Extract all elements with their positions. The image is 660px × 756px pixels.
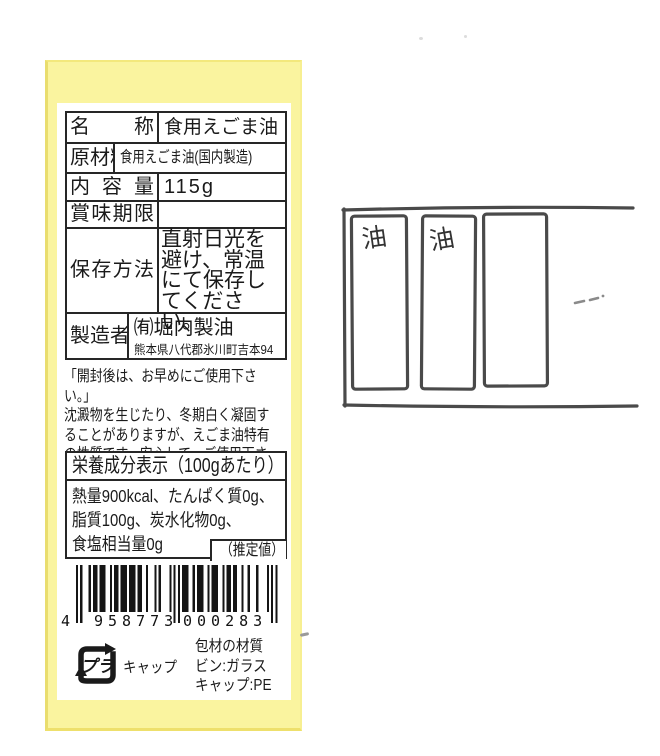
barcode-right-digits: 000283: [183, 612, 271, 630]
product-label-yellow-background: 名称 食用えごま油 原材料名 食用えごま油(国内製造) 内容量 115g 賞味期…: [45, 60, 302, 731]
table-row-storage: 保存方法 直射日光を避け、常温にて保存してください。: [67, 229, 285, 314]
table-row-name: 名称 食用えごま油: [67, 113, 285, 144]
row-label-manufacturer: 製造者: [67, 314, 129, 358]
table-row-manufacturer: 製造者 ㈲堀内製油 熊本県八代郡氷川町吉本94: [67, 314, 285, 358]
product-label-white-panel: 名称 食用えごま油 原材料名 食用えごま油(国内製造) 内容量 115g 賞味期…: [57, 103, 291, 700]
row-label-ingredients: 原材料名: [67, 144, 115, 172]
barcode-left-digits: 958773: [94, 612, 182, 630]
packaging-material-info: 包材の材質 ビン:ガラス キャップ:PE: [195, 637, 295, 696]
row-label-storage: 保存方法: [67, 229, 159, 312]
table-row-best-before: 賞味期限: [67, 202, 285, 229]
row-value-storage: 直射日光を避け、常温にて保存してください。: [159, 229, 285, 312]
sketch-slot-3: [484, 214, 548, 386]
sketch-outer-bottom-line: [344, 405, 637, 407]
table-row-net-content: 内容量 115g: [67, 174, 285, 202]
nutrition-title: 栄養成分表示（100gあたり）: [67, 453, 285, 481]
stray-dash: [590, 298, 598, 300]
row-label-name: 名称: [67, 113, 159, 142]
recycle-cap-label-text: キャップ: [123, 656, 177, 677]
stray-dot: [602, 295, 605, 298]
sketch-oil-character-1: 油: [360, 223, 389, 254]
nutrition-estimate-box: （推定値）: [210, 539, 286, 561]
sketch-outer-top-line: [343, 207, 633, 210]
nutrition-estimate-text: （推定値）: [220, 541, 284, 561]
row-label-best-before: 賞味期限: [67, 202, 159, 227]
stray-dash: [575, 301, 584, 303]
recycle-mark-text: プラ: [80, 657, 115, 676]
plastic-recycle-icon: プラ: [72, 641, 122, 691]
row-value-name: 食用えごま油: [159, 113, 285, 142]
barcode-first-digit: 4: [61, 612, 70, 630]
nutrition-title-text: 栄養成分表示（100gあたり）: [72, 453, 284, 479]
packaging-material-text: 包材の材質 ビン:ガラス キャップ:PE: [195, 637, 283, 696]
sketch-oil-character-2: 油: [427, 224, 456, 256]
sketch-outer-left-line: [344, 209, 345, 406]
ean13-barcode: 4 958773 000283: [61, 563, 287, 633]
nutrition-box: 栄養成分表示（100gあたり） 熱量900kcal、たんぱく質0g、 脂質100…: [65, 451, 287, 559]
product-info-table: 名称 食用えごま油 原材料名 食用えごま油(国内製造) 内容量 115g 賞味期…: [65, 111, 287, 360]
hand-drawn-shelf-sketch: 油 油: [335, 196, 655, 421]
scan-speck: [464, 35, 467, 38]
manufacturer-address: 熊本県八代郡氷川町吉本94: [134, 343, 273, 358]
row-value-ingredients: 食用えごま油(国内製造): [120, 144, 252, 172]
scan-speck: [419, 37, 423, 40]
row-value-best-before: [159, 202, 285, 227]
stray-pen-mark: [300, 632, 309, 637]
row-label-net-content: 内容量: [67, 174, 159, 200]
nutrition-body: 熱量900kcal、たんぱく質0g、 脂質100g、炭水化物0g、 食塩相当量0…: [67, 481, 285, 560]
row-value-net-content: 115g: [159, 174, 285, 200]
scanned-label-page: 名称 食用えごま油 原材料名 食用えごま油(国内製造) 内容量 115g 賞味期…: [0, 0, 660, 756]
manufacturer-name: ㈲堀内製油: [134, 315, 285, 341]
recycle-cap-label: キャップ: [123, 656, 183, 677]
table-row-ingredients: 原材料名 食用えごま油(国内製造): [67, 144, 285, 174]
